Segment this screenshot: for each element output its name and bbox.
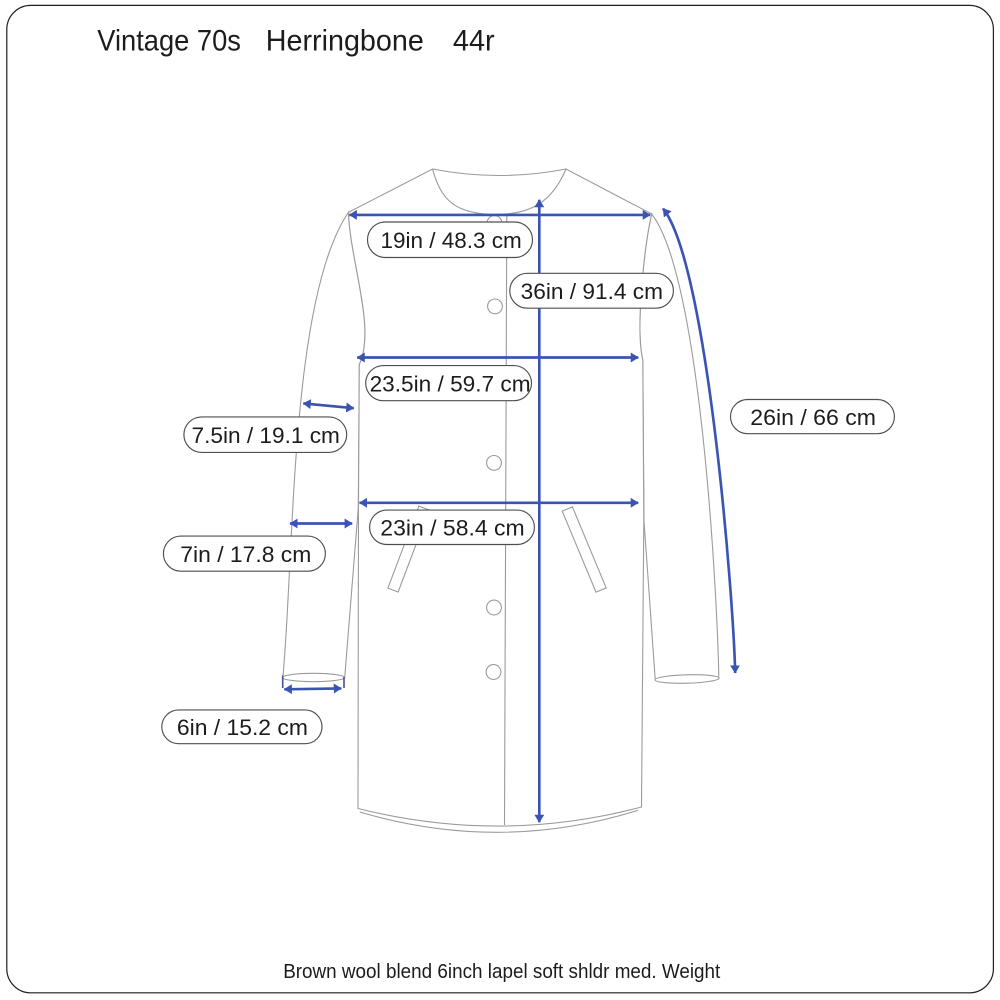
svg-text:6in / 15.2 cm: 6in / 15.2 cm	[177, 715, 308, 740]
svg-text:7.5in / 19.1 cm: 7.5in / 19.1 cm	[192, 423, 340, 448]
svg-text:Vintage 70s: Vintage 70s	[97, 25, 241, 58]
svg-text:26in / 66 cm: 26in / 66 cm	[750, 405, 876, 430]
svg-text:23.5in / 59.7 cm: 23.5in / 59.7 cm	[370, 371, 531, 396]
svg-text:7in / 17.8 cm: 7in / 17.8 cm	[180, 542, 311, 567]
svg-text:36in / 91.4 cm: 36in / 91.4 cm	[521, 279, 663, 304]
svg-text:23in / 58.4 cm: 23in / 58.4 cm	[380, 516, 524, 541]
svg-text:Herringbone: Herringbone	[266, 25, 424, 58]
svg-text:19in / 48.3 cm: 19in / 48.3 cm	[381, 228, 522, 253]
svg-text:44r: 44r	[453, 25, 495, 58]
svg-text:Brown wool blend 6inch lapel s: Brown wool blend 6inch lapel soft shldr …	[283, 960, 720, 983]
